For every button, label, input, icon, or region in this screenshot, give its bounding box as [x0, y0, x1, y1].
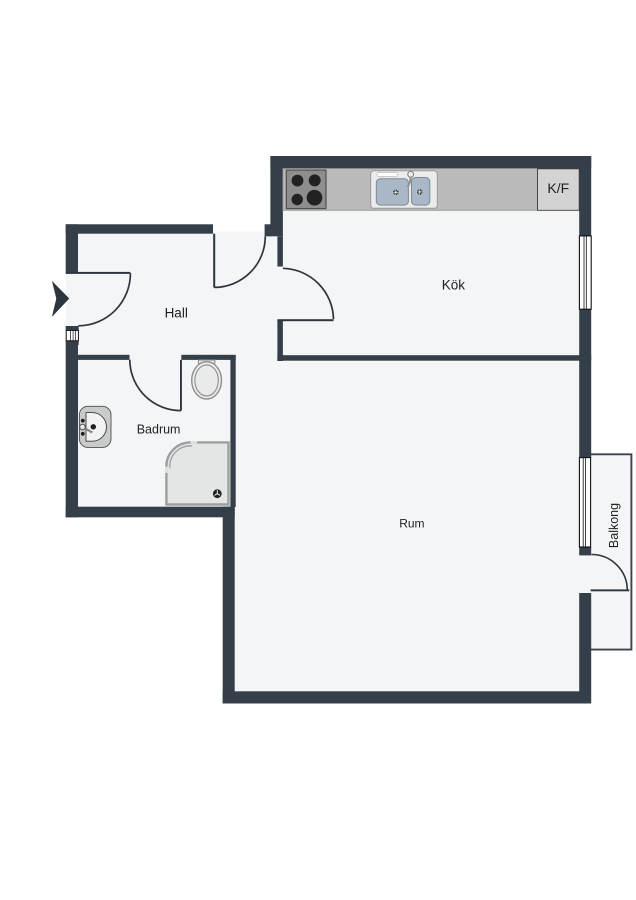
svg-text:Rum: Rum — [399, 517, 424, 531]
svg-text:Hall: Hall — [165, 305, 188, 320]
svg-text:Badrum: Badrum — [137, 423, 181, 437]
svg-text:K/F: K/F — [547, 180, 569, 196]
svg-text:Balkong: Balkong — [607, 503, 621, 548]
svg-text:Kök: Kök — [442, 278, 466, 293]
